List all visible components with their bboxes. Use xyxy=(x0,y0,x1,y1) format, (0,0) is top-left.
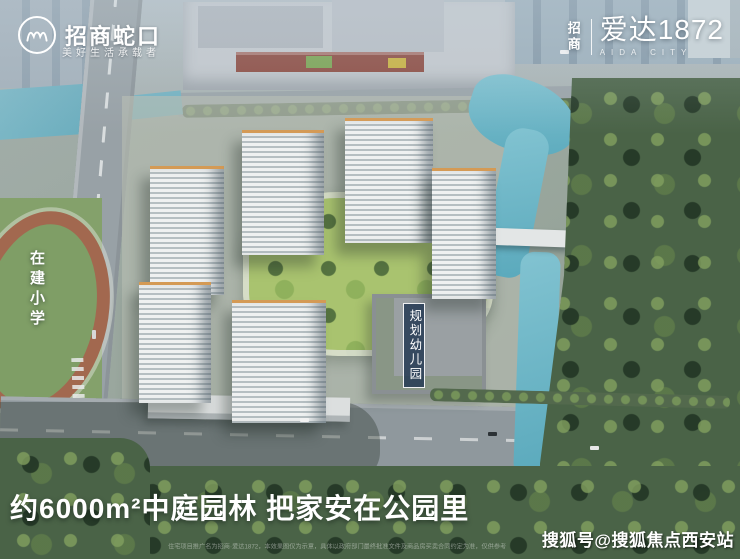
mall-roof-garden xyxy=(388,58,406,68)
car xyxy=(590,446,599,450)
mall-roof-garden xyxy=(306,56,332,68)
kindergarten-map-badge: 规划幼儿园 xyxy=(403,303,425,388)
mall-roof xyxy=(332,0,444,52)
logo-divider xyxy=(591,19,592,55)
marketing-headline: 约6000m²中庭园林 把家安在公园里 xyxy=(10,487,469,527)
car xyxy=(488,432,497,436)
residential-tower xyxy=(242,130,324,255)
residential-tower xyxy=(150,166,224,295)
school-map-label: 在建小学 xyxy=(26,250,47,330)
crosswalk xyxy=(71,358,84,398)
mall-roof xyxy=(198,6,323,48)
sohu-watermark: 搜狐号@搜狐焦点西安站 xyxy=(542,526,734,551)
residential-tower xyxy=(345,118,433,243)
wave-m-logo-icon xyxy=(18,16,56,54)
residential-tower xyxy=(139,282,211,403)
car xyxy=(300,418,309,422)
car xyxy=(92,330,96,339)
developer-tagline: 美好生活承载者 xyxy=(62,44,160,59)
residential-tower xyxy=(432,168,496,299)
legal-disclaimer: 住宅项目推广名为招商·爱达1872，本效果图仅为示意，具体以政府部门最终批准文件… xyxy=(168,541,540,550)
residential-tower xyxy=(232,300,326,423)
project-logo-prefix: 招商 xyxy=(564,21,583,53)
aerial-rendering-poster: 招商蛇口 美好生活承载者 招商 爱达1872 AIDA CITY 在建小学 规划… xyxy=(0,0,740,559)
project-name: 爱达1872 xyxy=(600,16,724,44)
project-latin-name: AIDA CITY xyxy=(600,48,724,57)
kindergarten-buildings xyxy=(372,294,486,394)
project-logo: 招商 爱达1872 AIDA CITY xyxy=(564,16,724,57)
